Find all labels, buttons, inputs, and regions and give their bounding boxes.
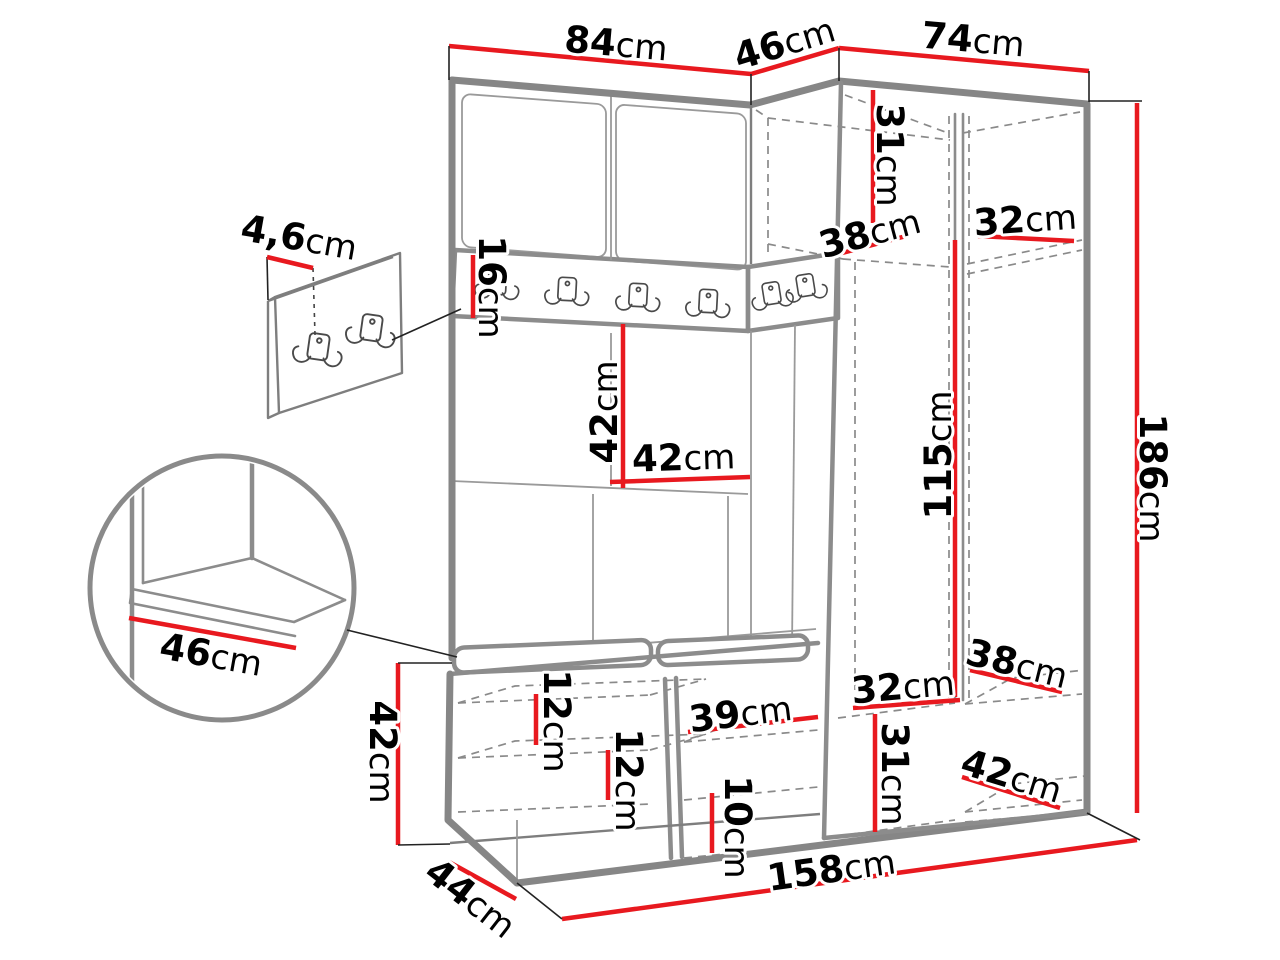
coat-hook-icon	[685, 288, 730, 317]
label-height-hanging: 115cm	[917, 390, 960, 519]
corner-cabinet-interior	[756, 95, 1080, 695]
label-width-right-top: 74cm	[920, 14, 1027, 66]
detail-circle	[90, 456, 354, 720]
label-bench-depth: 44cm	[417, 849, 525, 946]
wall-hook-panel-detail	[267, 253, 461, 418]
label-wall-panel-depth: 4,6cm	[238, 206, 361, 269]
dimension-diagram: 84cm 46cm 74cm 186cm 115cm 31cm 38cm 32c…	[0, 0, 1280, 960]
circle-pointer-line	[347, 630, 457, 657]
coat-hook-icon	[615, 282, 660, 311]
coat-hook-icon	[783, 271, 828, 303]
cabinet-door-left	[462, 94, 606, 258]
label-shoe-shelf-gap-top: 12cm	[535, 669, 578, 772]
label-width-left-top: 84cm	[563, 18, 670, 70]
label-lower-section-height: 31cm	[873, 722, 916, 825]
label-lower-shelf-width: 32cm	[850, 661, 957, 713]
coat-hook-icon	[544, 276, 589, 305]
label-back-panel-height: 42cm	[583, 360, 626, 463]
label-upper-cabinet-depth: 38cm	[814, 199, 925, 267]
bench-divider	[665, 679, 671, 858]
label-width-corner-top: 46cm	[729, 7, 840, 78]
coat-hook-icon	[749, 279, 794, 311]
label-upper-cabinet-height: 31cm	[868, 103, 911, 206]
label-hook-rail-height: 16cm	[470, 235, 513, 338]
label-back-panel-width: 42cm	[631, 434, 736, 481]
bench-divider-edge	[676, 678, 682, 857]
label-lower-shelf-depth: 38cm	[962, 631, 1073, 698]
label-bench-compartment-width: 39cm	[687, 686, 795, 741]
label-floor-gap: 10cm	[716, 775, 759, 878]
label-upper-shelf-width: 32cm	[972, 194, 1078, 244]
wardrobe-drawing: 84cm 46cm 74cm 186cm 115cm 31cm 38cm 32c…	[0, 0, 1280, 960]
label-base-shelf-depth: 42cm	[956, 740, 1067, 811]
label-shoe-shelf-gap-bottom: 12cm	[607, 728, 650, 831]
bench-cushion-left	[454, 640, 651, 673]
cabinet-door-right	[616, 104, 746, 270]
seat-detail-circle	[90, 456, 457, 720]
label-bench-height: 42cm	[361, 700, 404, 803]
label-height-total: 186cm	[1131, 413, 1174, 542]
